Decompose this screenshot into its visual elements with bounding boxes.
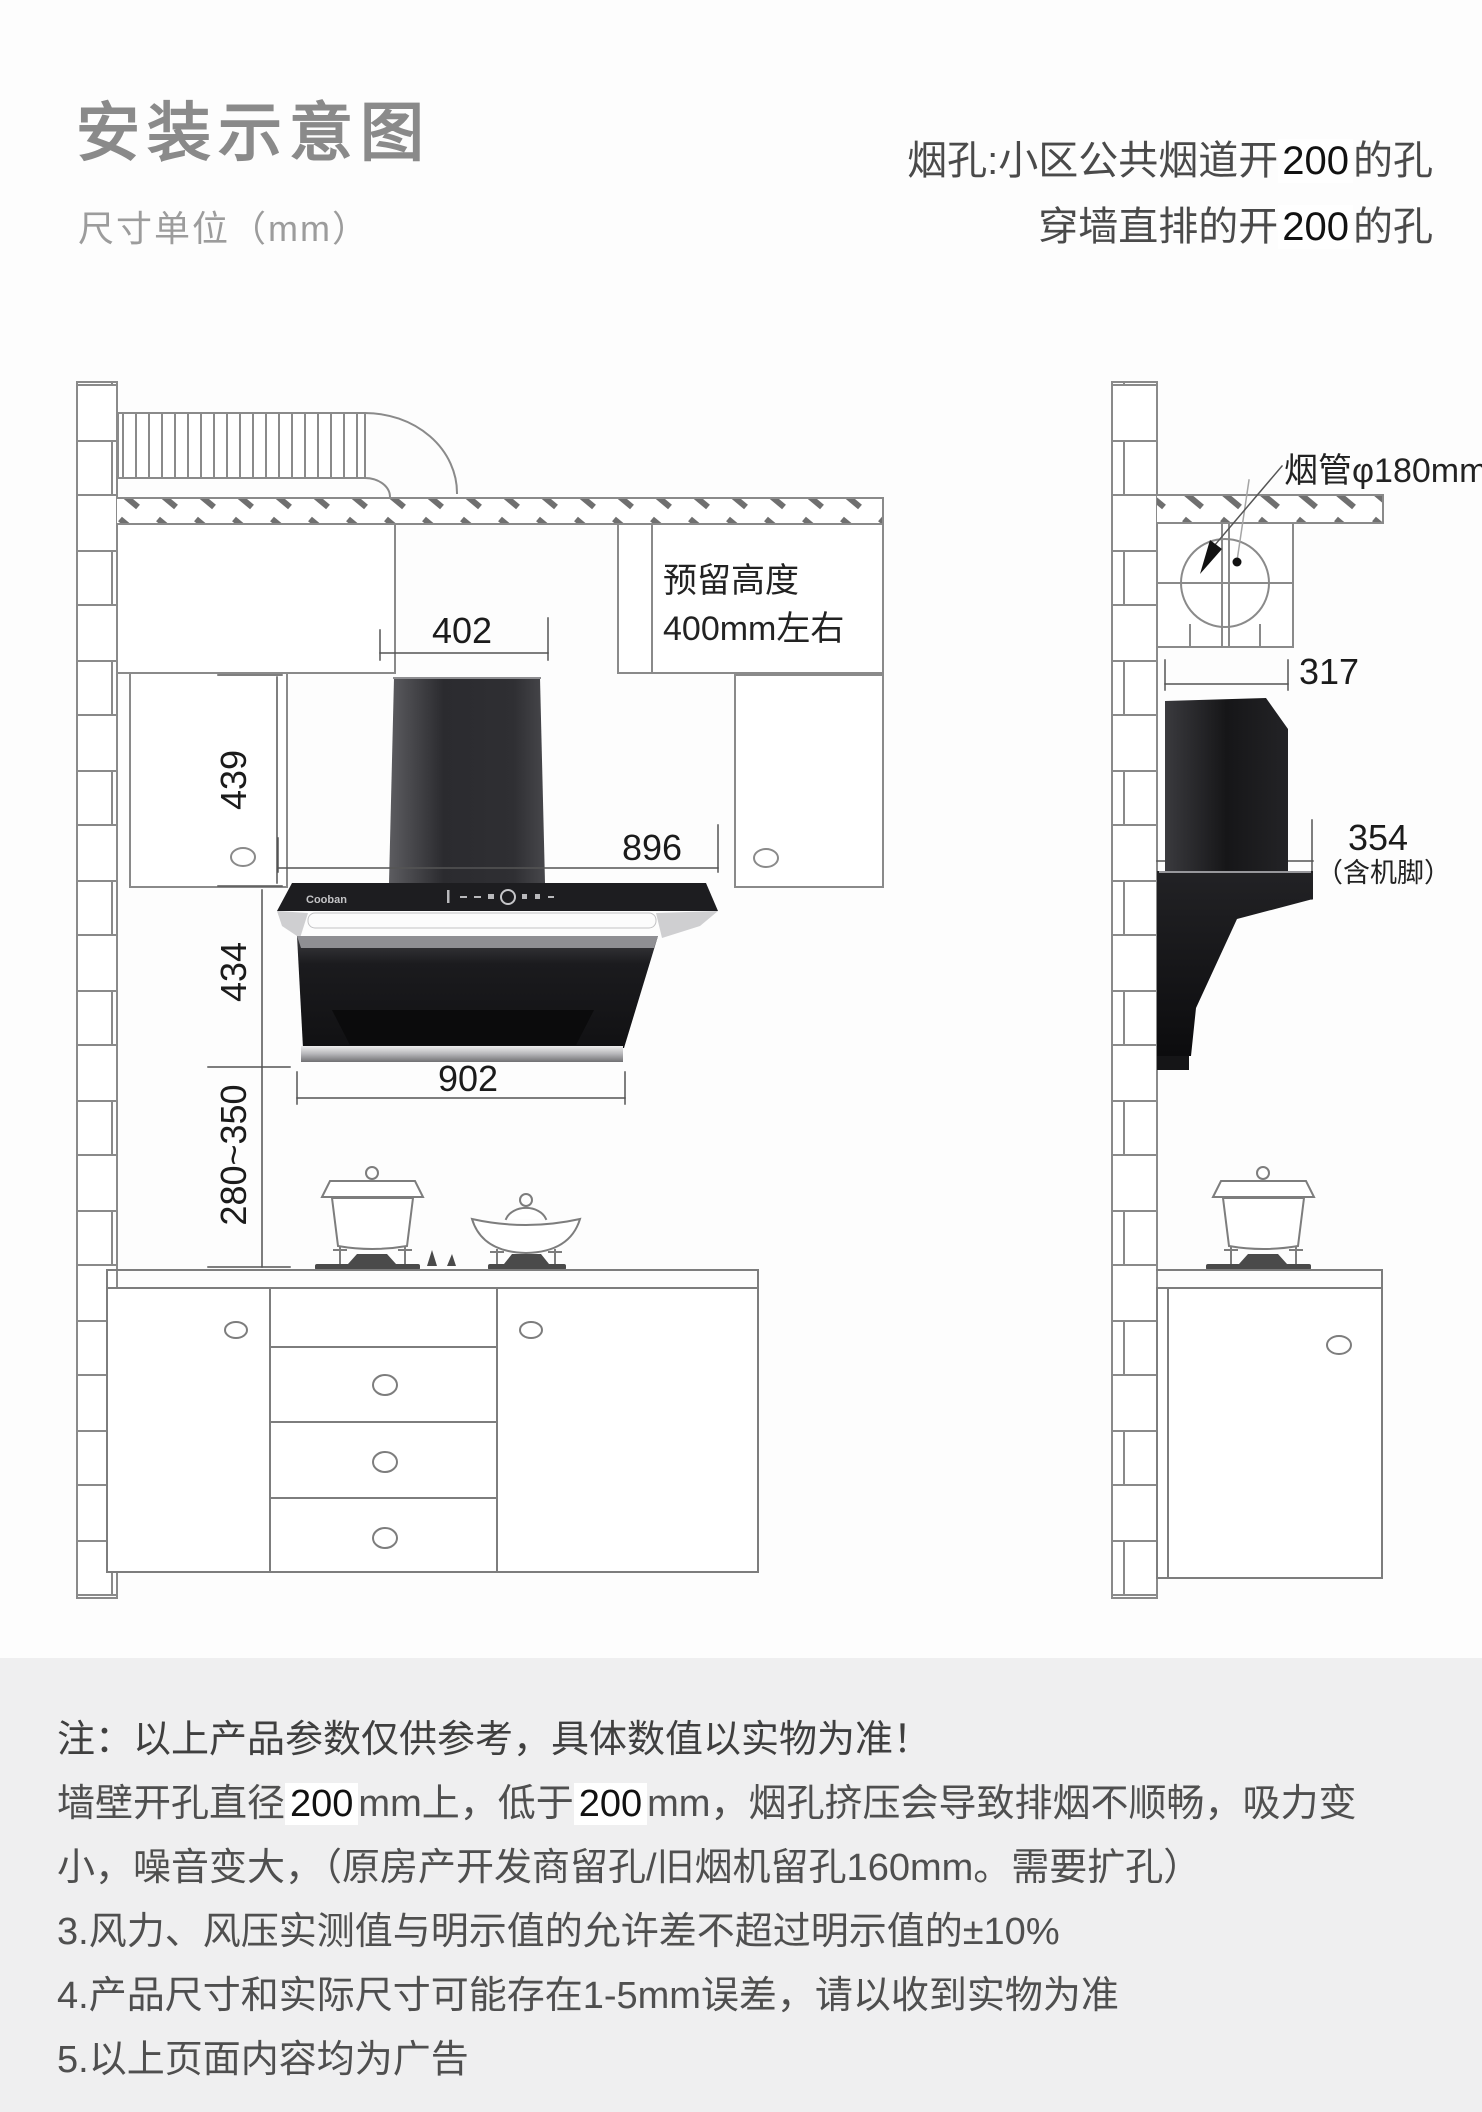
base-cabinet-right <box>1157 1288 1382 1578</box>
duct-bend-inner <box>365 478 390 497</box>
dim-434-label: 434 <box>213 942 254 1002</box>
note-line-2: 墙壁开孔直径200mm上，低于200mm，烟孔挤压会导致排烟不顺畅，吸力变 <box>57 1772 1482 1836</box>
reserve-height-label-2: 400mm左右 <box>663 610 844 648</box>
hood-side-body <box>1157 871 1313 1056</box>
pot-with-lid <box>1213 1167 1314 1264</box>
ceiling-left <box>117 498 883 524</box>
note-line-5: 4.产品尺寸和实际尺寸可能存在1-5mm误差，请以收到实物为准 <box>57 1964 1482 2028</box>
hood-brand-logo: Cooban <box>306 894 347 906</box>
note2-p2: mm上，低于 <box>358 1783 573 1825</box>
footnotes-section: 注：以上产品参数仅供参考，具体数值以实物为准！ 墙壁开孔直径200mm上，低于2… <box>0 1658 1482 2112</box>
dim-354-label: 354 <box>1348 817 1408 858</box>
note2-n1: 200 <box>285 1783 358 1825</box>
ceiling-right <box>1157 495 1383 523</box>
cooktop-right <box>1157 1167 1382 1288</box>
dim-902-label: 902 <box>438 1058 498 1099</box>
pipe-point-dot <box>1233 558 1242 567</box>
countertop-left <box>107 1270 758 1288</box>
hood-body-top-band <box>297 936 658 948</box>
cabinet-knob <box>754 849 778 867</box>
cabinet-knob <box>231 848 255 866</box>
cooktop-left <box>107 1167 758 1288</box>
note-line-4: 3.风力、风压实测值与明示值的允许差不超过明示值的±10% <box>57 1900 1482 1964</box>
dim-280-350-label: 280~350 <box>213 1084 254 1225</box>
note-line-1: 注：以上产品参数仅供参考，具体数值以实物为准！ <box>57 1708 1482 1772</box>
reserve-height-label-1: 预留高度 <box>663 562 799 600</box>
pipe-diameter-label: 烟管φ180mm <box>1284 452 1482 490</box>
hood-side-chimney <box>1165 698 1288 871</box>
note2-p1: 墙壁开孔直径 <box>57 1783 285 1825</box>
ceiling-hatch <box>117 498 883 524</box>
hood-chimney <box>389 678 545 883</box>
hood-suction-recess <box>332 1010 594 1045</box>
hood-right-flare <box>656 911 718 938</box>
wall-cabinet-mid-right <box>735 675 883 887</box>
brick-wall-right <box>1112 382 1157 1598</box>
range-hood-front: Cooban <box>277 883 718 1062</box>
exhaust-duct <box>118 413 457 497</box>
note2-n2: 200 <box>574 1783 647 1825</box>
hood-side-foot <box>1157 1056 1189 1070</box>
dim-402-label: 402 <box>432 610 492 651</box>
range-hood-side <box>1157 698 1313 1070</box>
side-view-diagram: 烟管φ180mm 317 354 （含机脚） <box>1112 382 1482 1598</box>
installation-diagram: 预留高度 400mm左右 402 <box>0 0 1482 1660</box>
dim-439-label: 439 <box>213 750 254 810</box>
dim-317: 317 <box>1165 651 1359 692</box>
wall-cabinet-mid-left <box>130 673 287 887</box>
dim-902: 902 <box>297 1058 625 1104</box>
dim-vertical-stack: 439 434 280~350 <box>208 675 290 1267</box>
reserve-height-box: 预留高度 400mm左右 <box>618 524 883 673</box>
note-line-3: 小，噪音变大，（原房产开发商留孔/旧烟机留孔160mm。需要扩孔） <box>57 1836 1482 1900</box>
wok-pan <box>472 1194 580 1264</box>
countertop-right <box>1157 1270 1382 1288</box>
front-view-diagram: 预留高度 400mm左右 402 <box>77 382 883 1598</box>
dim-896-label: 896 <box>622 827 682 868</box>
duct-housing-box <box>1157 523 1293 647</box>
wall-cabinet-top-left <box>117 524 395 673</box>
hood-left-flare <box>277 911 308 938</box>
hood-light-strip <box>308 913 656 928</box>
note-line-6: 5.以上页面内容均为广告 <box>57 2028 1482 2092</box>
note2-p3: mm，烟孔挤压会导致排烟不顺畅，吸力变 <box>647 1783 1356 1825</box>
duct-corrugated-section <box>118 413 365 478</box>
page: 安装示意图 尺寸单位（mm） 烟孔:小区公共烟道开200的孔 穿墙直排的开200… <box>0 0 1482 2112</box>
dim-354-sub-label: （含机脚） <box>1316 858 1451 888</box>
dim-402: 402 <box>380 610 548 660</box>
base-cabinet-left <box>107 1288 758 1572</box>
dim-317-label: 317 <box>1299 651 1359 692</box>
pot-with-lid <box>322 1167 423 1264</box>
